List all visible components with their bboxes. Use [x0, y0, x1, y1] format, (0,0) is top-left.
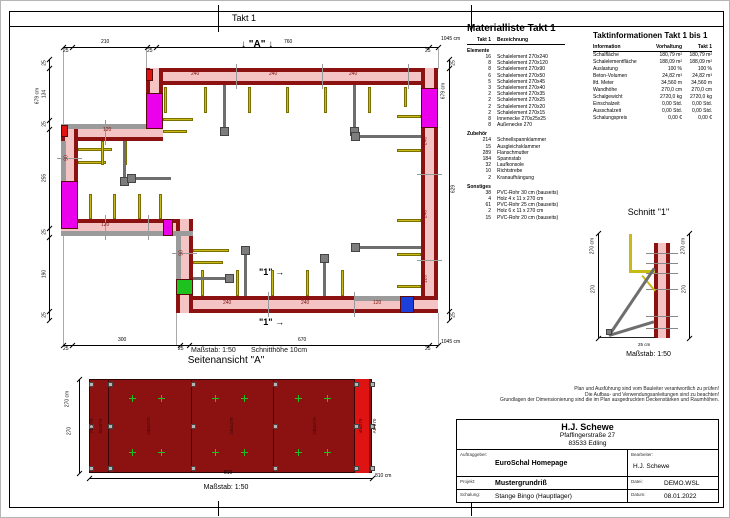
elevation-dim-line-left — [79, 379, 80, 473]
stop-end-timber-tick — [89, 194, 92, 219]
dimension-total-label-text: 679 cm — [36, 88, 41, 104]
takt-info-row: Schalgewicht2720,0 kg2720,0 kg — [593, 94, 712, 101]
stop-end-timber-tick — [163, 118, 193, 121]
dimension-label: 25 — [147, 49, 153, 54]
side-view-scale: Maßstab: 1:50 — [156, 484, 296, 491]
material-name: Kranaufhängung — [497, 175, 534, 181]
takt-info-cell: Vorhaltung — [651, 44, 682, 51]
project-label: Projekt: — [460, 479, 475, 484]
stop-end-timber-tick — [324, 87, 327, 113]
material-list-rows: Elemente16Schalelement 270x2408Schalelem… — [467, 48, 577, 221]
dimension-line-top — [63, 47, 438, 48]
editor-label: Bearbeiter: — [631, 452, 653, 457]
material-name: Außenecke 270 — [497, 122, 532, 128]
material-list-title: Materialliste Takt 1 — [467, 23, 577, 34]
elevation-dim-label: 810 cm — [375, 474, 391, 479]
takt-info-cell: 0,00 Std. — [651, 101, 682, 108]
side-view-a: Seitenansicht "A" AE 27050x270240x270240… — [56, 353, 401, 503]
section-dim-label-text: 270 cm — [591, 238, 596, 254]
tie-rod-line — [646, 263, 678, 264]
tie-rod-line — [646, 253, 678, 254]
corner-compensation-element — [163, 219, 173, 236]
clamp-marker — [108, 382, 113, 387]
dimension-label: 25 — [425, 347, 431, 352]
dimension-label: 760 — [284, 40, 292, 45]
wall-element-label: 120 — [373, 301, 381, 306]
material-list-col-qty: Takt 1 — [467, 37, 491, 43]
wall-element-label: 240 — [349, 72, 357, 77]
tie-joint-line — [354, 292, 355, 317]
tie-point-cross — [298, 395, 299, 402]
takt-info-table: Taktinformationen Takt 1 bis 1 Informati… — [593, 31, 712, 122]
section-wall — [654, 243, 670, 338]
material-qty: 15 — [467, 215, 491, 221]
takt-info-cell: 180,79 m² — [682, 52, 712, 59]
dim-tick — [687, 336, 693, 342]
company-street: Pfaffingerstraße 27 — [457, 432, 718, 440]
walkway-bracket — [629, 234, 632, 272]
takt-info-cell: Ausschalzeit — [593, 108, 651, 115]
stop-end-timber-tick — [78, 148, 112, 151]
takt-info-cell: 0,00 Std. — [682, 108, 712, 115]
dimension-label: 1045 cm — [441, 37, 460, 42]
prop-foot-plate — [320, 254, 329, 263]
wall-element-label: 240 — [301, 301, 309, 306]
disclaimer-notes: Plan und Ausführung sind vom Bauleiter v… — [451, 387, 719, 404]
tie-point-cross — [132, 395, 133, 402]
dimension-label: 25 — [63, 347, 69, 352]
takt-info-row: Auslastung100 %100 % — [593, 66, 712, 73]
elevation-dim-label-text: 270 cm — [66, 391, 71, 407]
dimension-label: 25 — [178, 347, 184, 352]
client-value: EuroSchal Homepage — [495, 460, 567, 467]
material-list-row: 2Kranaufhängung — [467, 175, 577, 181]
push-pull-prop — [193, 277, 229, 280]
tie-point-cross — [327, 449, 328, 456]
disclaimer-line: Grundlagen der Dimensionierung sind die … — [451, 398, 719, 404]
wall-element-label-text: 90 — [65, 155, 70, 161]
stop-end-timber-tick — [101, 141, 104, 165]
takt-info-header-row: InformationVorhaltungTakt 1 — [593, 44, 712, 52]
dimension-label: 25 — [425, 49, 431, 54]
takt-info-cell: Schalelementfläche — [593, 59, 651, 66]
elevation-dim-label: 810 — [224, 471, 232, 476]
section-detail-scale: Maßstab: 1:50 — [586, 351, 711, 358]
stop-end-timber-tick — [397, 149, 421, 152]
wall-element-label-text: 240 — [424, 137, 429, 145]
stop-end-timber-tick — [271, 270, 274, 296]
plan-sheet-page: Takt 1 ↓ "A" ↓ "1" → "1" → 2402402402402… — [0, 0, 730, 518]
takt-info-title: Taktinformationen Takt 1 bis 1 — [593, 31, 712, 40]
stop-end-timber-tick — [397, 219, 421, 222]
tie-joint-line — [322, 64, 323, 89]
dimension-label: 210 — [101, 40, 109, 45]
stop-end-timber-tick — [163, 130, 187, 133]
corner-compensation-element — [61, 181, 78, 229]
material-name: PVC-Rohr 20 cm (bauseits) — [497, 215, 558, 221]
takt-info-cell: 0,00 € — [651, 115, 682, 122]
tie-joint-line — [148, 215, 149, 240]
takt-info-cell: 100 % — [682, 66, 712, 73]
takt-info-row: Wandhöhe270,0 cm270,0 cm — [593, 87, 712, 94]
stop-end-timber-tick — [113, 194, 116, 219]
section-dim-line-left — [598, 233, 599, 338]
elevation-element-label-text: 50x270 — [99, 419, 104, 434]
prop-foot-plate — [606, 329, 612, 335]
wall-element-label: 240 — [223, 301, 231, 306]
clamp-marker — [191, 382, 196, 387]
date-value: 08.01.2022 — [664, 493, 697, 500]
tie-point-cross — [161, 395, 162, 402]
company-city: 83533 Edling — [457, 440, 718, 448]
takt-info-cell: Takt 1 — [682, 44, 712, 51]
dimension-label: 25 — [63, 49, 69, 54]
tie-point-cross — [215, 449, 216, 456]
tie-joint-line — [172, 253, 197, 254]
tie-joint-line — [417, 174, 442, 175]
wall-segment — [146, 68, 438, 85]
material-list: Materialliste Takt 1 Takt 1 Bezeichnung … — [467, 23, 577, 221]
push-pull-prop — [244, 250, 247, 296]
takt-info-cell: 24,82 m³ — [651, 73, 682, 80]
tie-rod-line — [646, 328, 678, 329]
tie-point-cross — [327, 395, 328, 402]
takt-info-cell: Schalungspreis — [593, 115, 651, 122]
takt-info-cell: 0,00 Std. — [682, 101, 712, 108]
tie-point-cross — [298, 449, 299, 456]
editor-value: H.J. Schewe — [633, 463, 670, 470]
stop-end-timber-tick — [368, 87, 371, 113]
clamp-marker — [108, 466, 113, 471]
elevation-element-label-text: 40x270 — [359, 419, 364, 434]
takt-info-cell: Schalfläche — [593, 52, 651, 59]
takt-info-cell: Beton-Volumen — [593, 73, 651, 80]
stop-end-timber-tick — [138, 194, 141, 219]
push-pull-prop — [323, 258, 326, 296]
takt-info-cell: Information — [593, 44, 651, 51]
dim-tick — [447, 318, 453, 324]
stop-end-timber-tick — [193, 249, 229, 252]
prop-foot-plate — [220, 127, 229, 136]
takt-info-row: lfd. Meter34,560 m34,560 m — [593, 80, 712, 87]
takt-info-cell: 24,82 m³ — [682, 73, 712, 80]
takt-info-cell: 34,560 m — [651, 80, 682, 87]
elevation-dim-line-bottom — [89, 478, 372, 479]
material-list-header: Takt 1 Bezeichnung — [467, 37, 565, 45]
tie-joint-line — [57, 158, 82, 159]
wall-element-label-text: 240 — [424, 210, 429, 218]
material-list-col-name: Bezeichnung — [497, 37, 528, 43]
section-bottom-label: 25 cm — [638, 343, 650, 348]
stop-end-timber-tick — [397, 115, 421, 118]
dimension-label-text: 25 — [43, 60, 48, 66]
prop-foot-plate — [351, 132, 360, 141]
blue-element — [400, 296, 414, 313]
extension-line — [63, 49, 64, 125]
clamp-marker — [273, 382, 278, 387]
tie-joint-line — [236, 64, 237, 89]
elevation-element-label-text: AE 270 — [90, 419, 95, 434]
stop-end-timber-tick — [248, 87, 251, 113]
file-value: DEMO.WSL — [664, 480, 699, 487]
stop-end-timber-tick — [164, 87, 167, 113]
prop-foot-plate — [241, 246, 250, 255]
takt-info-cell: lfd. Meter — [593, 80, 651, 87]
dimension-label: 670 — [298, 338, 306, 343]
takt-info-row: Ausschalzeit0,00 Std.0,00 Std. — [593, 108, 712, 115]
takt-info-rows: InformationVorhaltungTakt 1Schalfläche18… — [593, 44, 712, 122]
push-pull-prop — [355, 135, 421, 138]
takt-info-cell: 0,00 Std. — [651, 108, 682, 115]
dimension-label-text: 255 — [43, 174, 48, 182]
stop-end-timber-tick — [397, 285, 421, 288]
takt-info-row: Beton-Volumen24,82 m³24,82 m³ — [593, 73, 712, 80]
stop-end-timber-tick — [193, 261, 223, 264]
takt-info-cell: Wandhöhe — [593, 87, 651, 94]
stop-end-timber-tick — [306, 270, 309, 296]
material-list-row: 15PVC-Rohr 20 cm (bauseits) — [467, 215, 577, 221]
takt-info-cell: 270,0 cm — [682, 87, 712, 94]
section-dim-line-right — [689, 233, 690, 338]
title-block: H.J. Schewe Pfaffingerstraße 27 83533 Ed… — [456, 419, 719, 503]
wall-element-label-text: 120 — [424, 275, 429, 283]
wall-element-label-text: 90 — [180, 250, 185, 256]
stop-end-timber-tick — [159, 194, 162, 219]
takt-info-cell: 100 % — [651, 66, 682, 73]
corner-compensation-element — [421, 88, 438, 128]
red-corner-element — [61, 125, 68, 137]
tie-rod-line — [646, 316, 678, 317]
corner-compensation-element — [146, 93, 163, 129]
stop-end-timber-tick — [236, 270, 239, 296]
material-qty: 2 — [467, 175, 491, 181]
material-qty: 8 — [467, 122, 491, 128]
extension-line — [176, 313, 177, 346]
elevation-element-label-text: AE 270 — [373, 419, 378, 434]
section-detail-1: Schnitt "1" 270 cm270270 cm27025 cm Maßs… — [586, 201, 730, 366]
clamp-marker — [370, 466, 375, 471]
stop-end-timber-tick — [404, 87, 407, 107]
clamp-marker — [191, 424, 196, 429]
title-block-company-header: H.J. Schewe Pfaffingerstraße 27 83533 Ed… — [457, 420, 718, 450]
takt-info-cell: 0,00 € — [682, 115, 712, 122]
takt-info-cell: 270,0 cm — [651, 87, 682, 94]
extension-line — [63, 236, 64, 346]
tie-point-cross — [244, 449, 245, 456]
takt-info-cell: Schalgewicht — [593, 94, 651, 101]
wall-element-label: 240 — [269, 72, 277, 77]
extension-line — [438, 313, 439, 346]
dim-tick — [47, 318, 53, 324]
extension-line — [438, 49, 439, 69]
timber-compensation-strip — [61, 231, 193, 236]
wall-element-label: 240 — [191, 72, 199, 77]
takt-info-cell: Auslastung — [593, 66, 651, 73]
clamp-marker — [273, 424, 278, 429]
stop-end-timber-tick — [341, 270, 344, 296]
tie-joint-line — [417, 260, 442, 261]
red-corner-element — [146, 69, 153, 81]
section-detail-drawing: 270 cm270270 cm27025 cm — [586, 201, 730, 366]
push-pull-prop — [353, 85, 356, 131]
prop-foot-plate — [127, 174, 136, 183]
clamp-marker — [108, 424, 113, 429]
tie-point-cross — [161, 449, 162, 456]
project-value: Mustergrundriß — [495, 480, 547, 487]
dimension-label-text: 25 — [452, 312, 457, 318]
client-label: Auftraggeber: — [460, 452, 487, 457]
dimension-line-bottom — [63, 345, 438, 346]
elevation-element-label-text: 240x270 — [230, 417, 235, 434]
clamp-marker — [89, 466, 94, 471]
takt-info-cell: 188,09 m² — [651, 59, 682, 66]
prop-foot-plate — [225, 274, 234, 283]
wall-element-label: 120 — [103, 128, 111, 133]
dim-tick — [77, 471, 83, 477]
push-pull-prop — [123, 141, 126, 181]
stop-end-timber-tick — [204, 87, 207, 113]
clamp-marker — [354, 382, 359, 387]
tie-point-cross — [215, 395, 216, 402]
push-pull-prop — [223, 85, 226, 131]
dimension-label-text: 25 — [43, 229, 48, 235]
clamp-marker — [89, 382, 94, 387]
prop-foot-plate — [351, 243, 360, 252]
takt-info-cell: 2720,0 kg — [682, 94, 712, 101]
tie-joint-line — [408, 64, 409, 89]
dimension-line-left — [49, 59, 50, 320]
green-element — [176, 279, 193, 295]
file-label: Datei: — [631, 479, 643, 484]
formwork-label: Schalung: — [460, 492, 480, 497]
push-pull-prop — [355, 246, 421, 249]
dimension-label-text: 25 — [43, 312, 48, 318]
company-name: H.J. Schewe — [457, 422, 718, 432]
tie-joint-line — [268, 292, 269, 317]
tie-point-cross — [244, 395, 245, 402]
tie-rod-line — [646, 289, 678, 290]
takt-info-row: Schalfläche180,79 m²180,79 m² — [593, 52, 712, 59]
wall-element-label: 120 — [101, 223, 109, 228]
takt-info-cell: 34,560 m — [682, 80, 712, 87]
elevation-dim-label-text: 270 — [68, 427, 73, 435]
stop-end-timber-tick — [397, 253, 421, 256]
stop-end-timber-tick — [201, 270, 204, 296]
takt-info-row: Schalelementfläche188,09 m²188,09 m² — [593, 59, 712, 66]
takt-info-cell: 188,09 m² — [682, 59, 712, 66]
elevation-element-label-text: 240x270 — [313, 417, 318, 434]
takt-info-cell: 2720,0 kg — [651, 94, 682, 101]
title-block-rule — [457, 476, 718, 477]
clamp-marker — [191, 466, 196, 471]
section-dim-label-text: 270 — [592, 285, 597, 293]
stop-end-timber-tick — [286, 87, 289, 113]
dimension-label-text: 629 — [452, 185, 457, 193]
dimension-label-text: 25 — [43, 121, 48, 127]
dimension-total-label-text: 679 cm — [442, 83, 447, 99]
takt-info-row: Einschalzeit0,00 Std.0,00 Std. — [593, 101, 712, 108]
takt-info-cell: 180,79 m² — [651, 52, 682, 59]
elevation-element-label-text: 240x270 — [147, 417, 152, 434]
clamp-marker — [354, 466, 359, 471]
dimension-label: 300 — [118, 338, 126, 343]
push-pull-prop — [131, 177, 171, 180]
takt-info-cell: Einschalzeit — [593, 101, 651, 108]
section-dim-label-text: 270 — [683, 285, 688, 293]
ground-line — [598, 337, 656, 338]
takt-info-row: Schalungspreis0,00 €0,00 € — [593, 115, 712, 122]
dimension-label: 1045 cm — [441, 340, 460, 345]
dimension-label-text: 190 — [43, 270, 48, 278]
dimension-label-text: 134 — [43, 90, 48, 98]
date-label: Datum: — [631, 492, 646, 497]
title-block-rule — [457, 489, 718, 490]
material-list-row: 8Außenecke 270 — [467, 122, 577, 128]
dimension-label-text: 25 — [452, 60, 457, 66]
clamp-marker — [370, 382, 375, 387]
side-view-drawing: AE 27050x270240x270240x270240x27040x270A… — [56, 353, 401, 503]
clamp-marker — [273, 466, 278, 471]
section-dim-label-text: 270 cm — [682, 238, 687, 254]
formwork-value: Stange Bingo (Hauptlager) — [495, 493, 572, 500]
tie-point-cross — [132, 449, 133, 456]
